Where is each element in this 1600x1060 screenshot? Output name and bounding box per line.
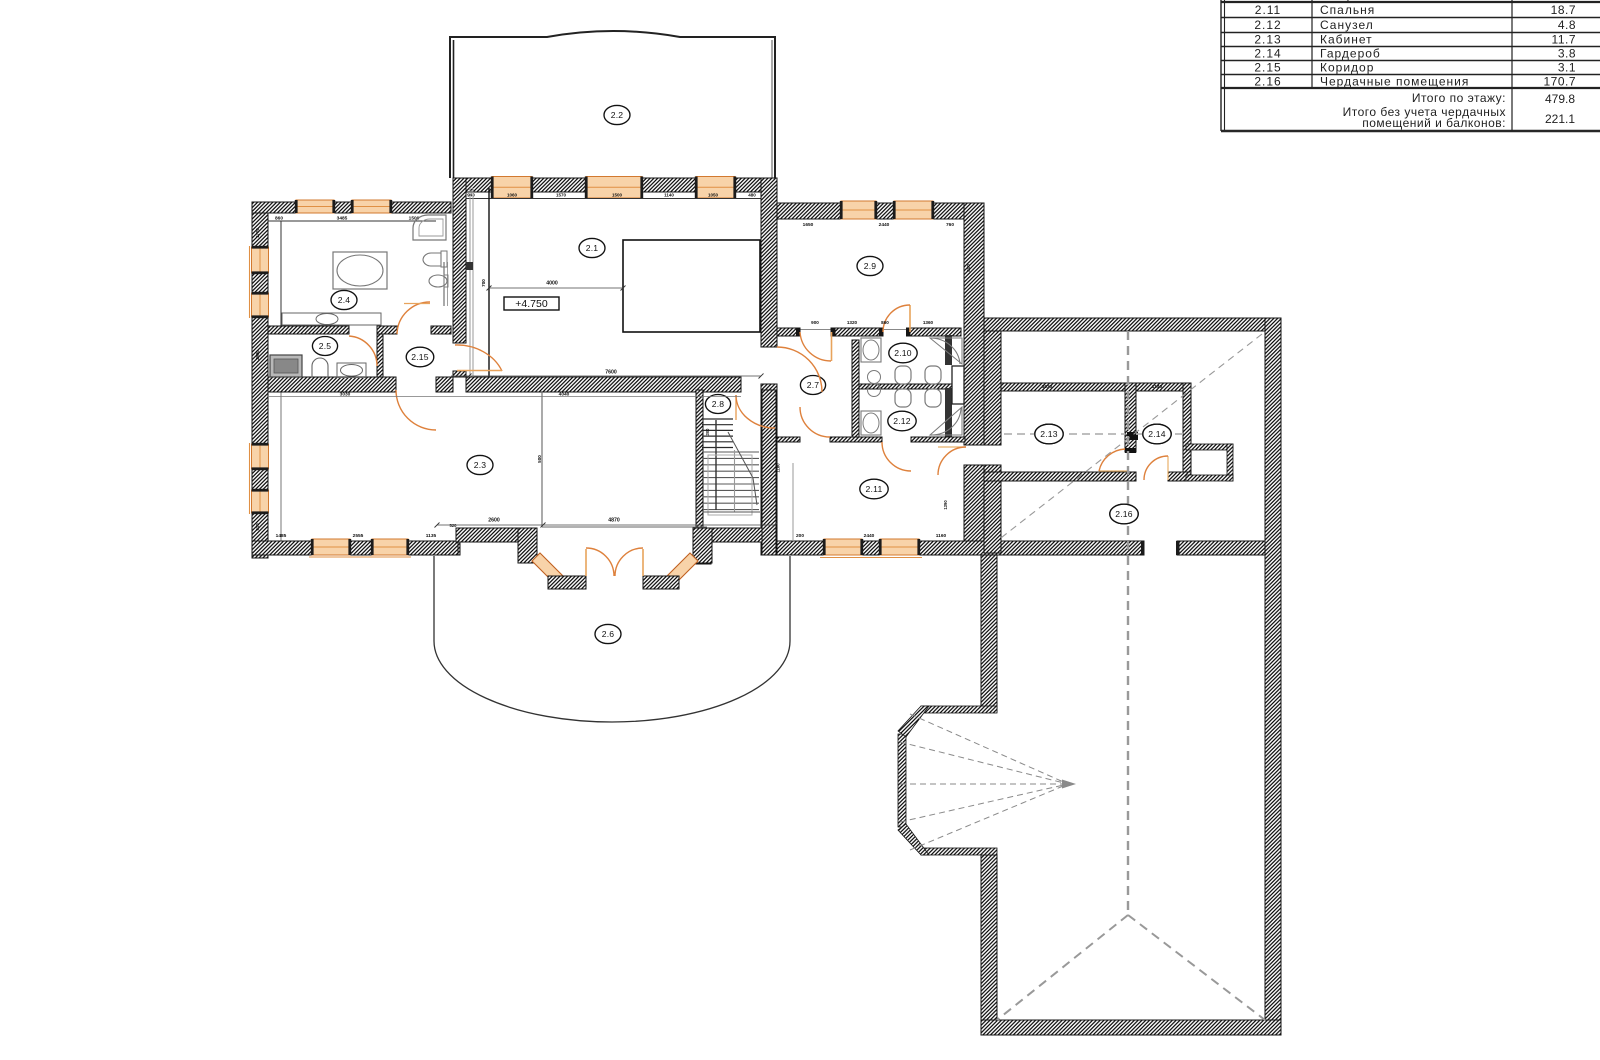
svg-text:170.7: 170.7 — [1543, 74, 1576, 88]
svg-text:910: 910 — [255, 523, 260, 531]
svg-text:1360: 1360 — [923, 320, 934, 325]
svg-text:3.8: 3.8 — [1558, 47, 1576, 61]
svg-text:2440: 2440 — [864, 533, 875, 539]
svg-text:Санузел: Санузел — [1320, 18, 1374, 32]
svg-text:4870: 4870 — [608, 518, 620, 524]
svg-text:2.14: 2.14 — [1254, 47, 1281, 61]
svg-text:1650: 1650 — [803, 222, 814, 228]
svg-text:1500: 1500 — [612, 193, 623, 198]
svg-text:2.14: 2.14 — [1148, 429, 1166, 439]
svg-text:Коридор: Коридор — [1320, 61, 1374, 75]
svg-text:1180: 1180 — [776, 463, 781, 473]
svg-text:2.13: 2.13 — [1254, 33, 1281, 47]
svg-text:2.12: 2.12 — [893, 416, 911, 426]
svg-text:4000: 4000 — [546, 281, 558, 287]
svg-text:Итого по этажу:: Итого по этажу: — [1412, 91, 1506, 105]
svg-text:Гардероб: Гардероб — [1320, 47, 1381, 61]
svg-text:520: 520 — [450, 523, 458, 528]
svg-text:479.8: 479.8 — [1545, 92, 1575, 106]
svg-text:2.11: 2.11 — [1255, 3, 1281, 17]
svg-text:1320: 1320 — [847, 320, 858, 325]
svg-text:3030: 3030 — [1042, 384, 1053, 390]
svg-text:Кабинет: Кабинет — [1320, 33, 1373, 47]
svg-text:200: 200 — [796, 533, 804, 539]
svg-text:2.6: 2.6 — [602, 629, 615, 639]
svg-text:3.1: 3.1 — [1558, 61, 1576, 75]
svg-text:3030: 3030 — [340, 392, 351, 398]
svg-text:11.7: 11.7 — [1552, 33, 1576, 47]
svg-text:2.1: 2.1 — [586, 243, 599, 253]
svg-text:2.4: 2.4 — [338, 295, 351, 305]
svg-text:2980: 2980 — [255, 350, 260, 360]
svg-text:Спальня: Спальня — [1320, 3, 1375, 17]
svg-text:800: 800 — [966, 264, 971, 272]
svg-text:7600: 7600 — [605, 370, 617, 376]
svg-text:2.12: 2.12 — [1254, 18, 1281, 32]
svg-text:1140: 1140 — [1152, 384, 1163, 390]
svg-text:300: 300 — [705, 428, 710, 436]
svg-text:500: 500 — [537, 455, 542, 463]
svg-text:2.16: 2.16 — [1254, 74, 1281, 88]
svg-text:+4.750: +4.750 — [515, 298, 548, 310]
svg-text:2.7: 2.7 — [807, 380, 820, 390]
svg-text:1135: 1135 — [426, 533, 437, 539]
svg-text:2.3: 2.3 — [474, 460, 487, 470]
svg-text:860: 860 — [881, 320, 889, 325]
svg-text:700: 700 — [481, 279, 486, 287]
svg-text:1570: 1570 — [556, 193, 567, 198]
svg-text:2.15: 2.15 — [1254, 61, 1281, 75]
svg-text:2.11: 2.11 — [866, 484, 883, 494]
svg-text:2.16: 2.16 — [1115, 509, 1133, 519]
svg-text:940: 940 — [467, 193, 475, 198]
svg-text:1770: 1770 — [255, 228, 260, 238]
svg-text:2600: 2600 — [488, 518, 500, 524]
svg-text:1160: 1160 — [936, 533, 947, 539]
svg-text:2555: 2555 — [353, 533, 364, 539]
svg-text:2.8: 2.8 — [712, 399, 725, 409]
svg-text:2.5: 2.5 — [319, 341, 332, 351]
svg-text:221.1: 221.1 — [1545, 112, 1575, 126]
svg-text:1140: 1140 — [664, 193, 674, 198]
svg-text:помещений и балконов:: помещений и балконов: — [1362, 116, 1506, 130]
svg-text:Чердачные помещения: Чердачные помещения — [1320, 74, 1469, 88]
svg-text:2.15: 2.15 — [411, 352, 429, 362]
svg-text:1050: 1050 — [708, 193, 719, 198]
svg-text:2.2: 2.2 — [611, 110, 624, 120]
svg-text:1485: 1485 — [276, 533, 287, 539]
svg-text:2440: 2440 — [879, 222, 890, 228]
svg-text:860: 860 — [275, 216, 283, 222]
svg-text:2.13: 2.13 — [1040, 429, 1058, 439]
svg-text:1060: 1060 — [507, 193, 518, 198]
svg-text:1390: 1390 — [943, 500, 948, 510]
svg-text:480: 480 — [748, 193, 756, 198]
svg-text:18.7: 18.7 — [1551, 3, 1576, 17]
svg-text:760: 760 — [946, 222, 954, 228]
svg-text:900: 900 — [811, 320, 819, 325]
svg-text:4.8: 4.8 — [1558, 18, 1576, 32]
svg-text:3485: 3485 — [337, 216, 348, 222]
svg-text:2.10: 2.10 — [894, 348, 912, 358]
svg-text:2.9: 2.9 — [864, 261, 877, 271]
